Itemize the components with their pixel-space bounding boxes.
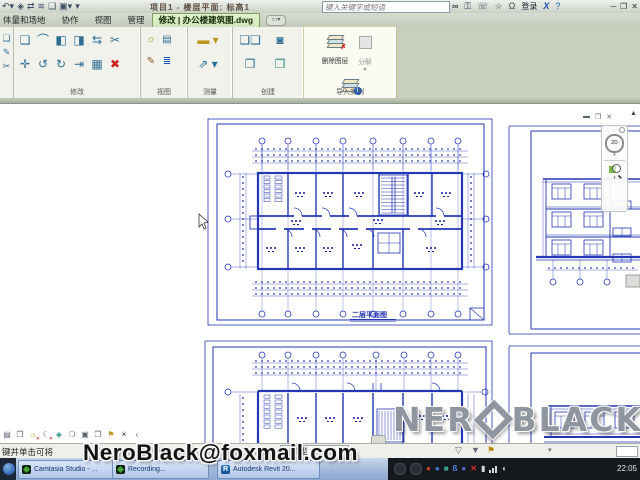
explode-button[interactable]: 分解 ▾ bbox=[350, 29, 380, 73]
create-panel: ❏❏ ◙ ❐ ❒ 创建 bbox=[233, 27, 304, 98]
layers-icon: ✗ bbox=[328, 35, 343, 48]
split-element-icon[interactable]: ◧ bbox=[52, 29, 70, 53]
create-similar-icon[interactable]: ◙ bbox=[265, 29, 295, 53]
view-close-icon[interactable]: ✕ bbox=[606, 113, 612, 121]
network-signal-icon[interactable] bbox=[489, 465, 497, 473]
drawing-canvas[interactable]: 二层平面图 ▬ ❐ ✕ ▲ 2D ▾ ▾ bbox=[0, 103, 640, 445]
ribbon-panels: ❏ ✎ ✂ ❏ ⌒ ◧ ◨ ⇆ ✂ ✛ ↺ ↻ ⇥ ▦ ✖ bbox=[0, 27, 398, 98]
tray-security-icon[interactable]: ● bbox=[426, 464, 431, 474]
watermark-logo: NER BLACK bbox=[393, 396, 640, 442]
status-dropdown2-icon[interactable]: ▾ bbox=[548, 446, 552, 454]
tab-view[interactable]: 视图 bbox=[86, 14, 121, 26]
selection-count-box bbox=[616, 446, 638, 457]
scale-icon[interactable]: ▤ bbox=[1, 429, 13, 441]
filter-icon[interactable]: ▽ bbox=[455, 445, 462, 456]
component-icon[interactable]: ❐ bbox=[235, 53, 265, 77]
plan-title-text: 二层平面图 bbox=[352, 310, 387, 319]
delete-layers-button[interactable]: ✗ 删除图层 bbox=[320, 29, 350, 73]
view-properties-icon[interactable]: ≣ bbox=[159, 51, 175, 73]
create-panel-label[interactable]: 创建 bbox=[233, 87, 303, 97]
paste-icon[interactable]: ❏ bbox=[0, 31, 13, 45]
window-title: 项目1 - 楼层平面: 标高1 bbox=[150, 2, 250, 13]
steering-wheel-2d-icon[interactable]: 2D bbox=[605, 134, 624, 153]
cube-icon bbox=[359, 36, 372, 49]
search-binoculars-icon[interactable]: ∞ bbox=[452, 0, 458, 13]
wheel-dropdown-icon[interactable]: ▾ bbox=[602, 153, 627, 157]
cad-drawing: 二层平面图 bbox=[0, 104, 640, 445]
offset-icon[interactable]: ✂ bbox=[106, 29, 124, 53]
measure-panel-label[interactable]: 测量 bbox=[188, 87, 232, 97]
sheet1-second-floor-plan: 二层平面图 bbox=[208, 119, 492, 325]
bluetooth-icon[interactable]: ß bbox=[453, 464, 458, 474]
view-minimize-icon[interactable]: ▬ bbox=[583, 113, 590, 121]
qat-menu-icon[interactable]: ▾ bbox=[75, 0, 80, 13]
ribbon-tab-row: 体量和场地 协作 视图 管理 修改 | 办公楼建筑图.dwg ▭▾ bbox=[0, 13, 640, 27]
help-icon[interactable]: ? bbox=[555, 0, 560, 13]
navbar-close-icon[interactable] bbox=[619, 127, 625, 133]
measure-icon[interactable]: ⇗ ▾ bbox=[190, 53, 226, 77]
render-icon[interactable]: ❍ bbox=[66, 429, 78, 441]
communication-icon[interactable]: ☏ bbox=[477, 0, 488, 13]
explode-dropdown-icon[interactable]: ▾ bbox=[350, 66, 380, 73]
view-panel: ☼ ▤ ✎ ≣ 视图 bbox=[141, 27, 188, 98]
tab-collaborate[interactable]: 协作 bbox=[53, 14, 88, 26]
import-instance-panel-label[interactable]: 导入实例 bbox=[304, 87, 396, 97]
linework-icon[interactable]: ✎ bbox=[143, 51, 159, 73]
camtasia-icon bbox=[22, 465, 31, 474]
exclude-options-icon[interactable]: ▼ bbox=[471, 445, 480, 455]
close-button[interactable]: ✕ bbox=[631, 0, 638, 13]
zoom-dropdown-icon[interactable]: ▾ bbox=[602, 176, 627, 180]
modify-options-pill[interactable]: ▭▾ bbox=[266, 15, 286, 26]
start-button[interactable] bbox=[0, 458, 16, 480]
revit-application-window: ↶▾ ◈ ⇄ ≋ ❑ ▣▾ ▾ 项目1 - 楼层平面: 标高1 ∞ ⚿ ☏ ☆ … bbox=[0, 0, 640, 480]
system-tray: ● ● ■ ß ● ✕ ▮ ◖ 22:05 bbox=[388, 458, 640, 480]
undo-icon[interactable]: ↶▾ bbox=[2, 0, 14, 13]
legend-icon[interactable]: ❒ bbox=[265, 53, 295, 77]
tray-update-icon[interactable]: ● bbox=[435, 464, 440, 474]
start-orb-icon bbox=[3, 463, 15, 475]
ribbon: ❏ ✎ ✂ ❏ ⌒ ◧ ◨ ⇆ ✂ ✛ ↺ ↻ ⇥ ▦ ✖ bbox=[0, 27, 640, 103]
infocenter-icons: ∞ ⚿ ☏ ☆ Ω 登录 X ? bbox=[452, 0, 560, 13]
volume-icon[interactable]: ◖ bbox=[501, 464, 506, 474]
view-restore-icon[interactable]: ❐ bbox=[595, 113, 601, 121]
fillet-icon[interactable]: ⌒ bbox=[34, 29, 52, 53]
camtasia-icon bbox=[116, 465, 125, 474]
editable-only-icon[interactable]: ⚑ bbox=[487, 445, 495, 456]
quick-access-toolbar: ↶▾ ◈ ⇄ ≋ ❑ ▣▾ ▾ bbox=[2, 0, 80, 13]
tray-phone-icon[interactable]: ● bbox=[461, 464, 466, 474]
watermark-email: NeroBlack@foxmail.com bbox=[83, 440, 358, 466]
watermark-logo-left: NER bbox=[393, 400, 475, 439]
import-instance-panel: ✗ 删除图层 分解 ▾ i 查询 导入实例 bbox=[304, 27, 397, 98]
restore-button[interactable]: ❐ bbox=[620, 0, 627, 13]
modify-panel-label[interactable]: 修改 bbox=[14, 87, 140, 97]
tray-im-icon[interactable]: ■ bbox=[444, 464, 449, 474]
tab-manage[interactable]: 管理 bbox=[119, 14, 154, 26]
visual-style-icon[interactable]: ◈ bbox=[53, 429, 65, 441]
ime-icon[interactable]: ▮ bbox=[481, 464, 485, 474]
modify-tool-icon[interactable]: ◈ bbox=[17, 0, 24, 13]
search-input[interactable] bbox=[322, 1, 450, 13]
signin-person-icon[interactable]: Ω bbox=[509, 0, 516, 13]
signin-label[interactable]: 登录 bbox=[521, 0, 537, 13]
match-icon[interactable]: ✎ bbox=[0, 45, 13, 59]
title-bar: ↶▾ ◈ ⇄ ≋ ❑ ▣▾ ▾ 项目1 - 楼层平面: 标高1 ∞ ⚿ ☏ ☆ … bbox=[0, 0, 640, 14]
sun-path-off-icon[interactable]: ☼✕ bbox=[27, 429, 39, 441]
split-with-gap-icon[interactable]: ◨ bbox=[70, 29, 88, 53]
thin-lines-bulb-icon[interactable]: ☼ bbox=[143, 29, 159, 51]
scroll-up-arrow-icon[interactable]: ▲ bbox=[630, 110, 637, 117]
view-panel-label[interactable]: 视图 bbox=[141, 87, 187, 97]
trim-icon[interactable]: ⇥ bbox=[70, 53, 88, 77]
tray-app-icon[interactable] bbox=[410, 463, 422, 475]
zoom-icon[interactable] bbox=[609, 164, 621, 176]
thin-lines-icon[interactable]: ≋ bbox=[38, 0, 46, 13]
print-icon[interactable]: ❑ bbox=[48, 0, 56, 13]
mouse-cursor bbox=[199, 214, 208, 229]
delete-icon[interactable]: ✖ bbox=[106, 53, 124, 77]
tray-clock: 22:05 bbox=[617, 464, 637, 473]
tray-error-icon[interactable]: ✕ bbox=[470, 464, 477, 474]
detail-level-icon[interactable]: ❐ bbox=[14, 429, 26, 441]
cut-icon[interactable]: ✂ bbox=[0, 59, 13, 73]
align-icon[interactable]: ⇆ bbox=[88, 29, 106, 53]
measure-panel: ▬ ▾ ⇗ ▾ 测量 bbox=[188, 27, 233, 98]
shadows-off-icon[interactable]: ☾✕ bbox=[40, 429, 52, 441]
cope-icon[interactable]: ❏ bbox=[16, 29, 34, 53]
navbar-divider bbox=[604, 160, 625, 161]
rotate-icon[interactable]: ↻ bbox=[52, 53, 70, 77]
favorites-star-icon[interactable]: ☆ bbox=[495, 0, 503, 13]
view-window-controls: ▬ ❐ ✕ bbox=[583, 113, 612, 121]
move-icon[interactable]: ✛ bbox=[16, 53, 34, 77]
revit-icon: R bbox=[221, 465, 230, 474]
minimize-button[interactable]: ─ bbox=[610, 0, 616, 13]
ribbon-empty-area bbox=[397, 27, 398, 98]
watermark-diamond-icon bbox=[473, 399, 513, 439]
tray-app-icon[interactable] bbox=[394, 463, 406, 475]
array-icon[interactable]: ▦ bbox=[88, 53, 106, 77]
copy-icon[interactable]: ↺ bbox=[34, 53, 52, 77]
clipboard-panel-partial: ❏ ✎ ✂ bbox=[0, 27, 14, 98]
subscription-key-icon[interactable]: ⚿ bbox=[464, 0, 471, 13]
visibility-icon[interactable]: ▤ bbox=[159, 29, 175, 51]
status-hint-text: 键并单击可将 bbox=[2, 446, 53, 458]
modify-panel: ❏ ⌒ ◧ ◨ ⇆ ✂ ✛ ↺ ↻ ⇥ ▦ ✖ 修改 bbox=[14, 27, 141, 98]
create-group-icon[interactable]: ❏❏ bbox=[235, 29, 265, 53]
aligned-dimension-icon[interactable]: ▬ ▾ bbox=[190, 29, 226, 53]
window-buttons: ─ ❐ ✕ bbox=[610, 0, 638, 13]
navigation-bar: 2D ▾ ▾ bbox=[601, 125, 628, 212]
exchange-icon[interactable]: X bbox=[543, 0, 549, 13]
tab-modify-contextual[interactable]: 修改 | 办公楼建筑图.dwg bbox=[152, 13, 260, 27]
watermark-logo-right: BLACK bbox=[511, 400, 640, 439]
delete-badge-icon: ✗ bbox=[341, 43, 347, 51]
open-icon[interactable]: ▣▾ bbox=[59, 0, 72, 13]
switch-windows-icon[interactable]: ⇄ bbox=[27, 0, 35, 13]
tab-massing-site[interactable]: 体量和场地 bbox=[0, 14, 55, 26]
